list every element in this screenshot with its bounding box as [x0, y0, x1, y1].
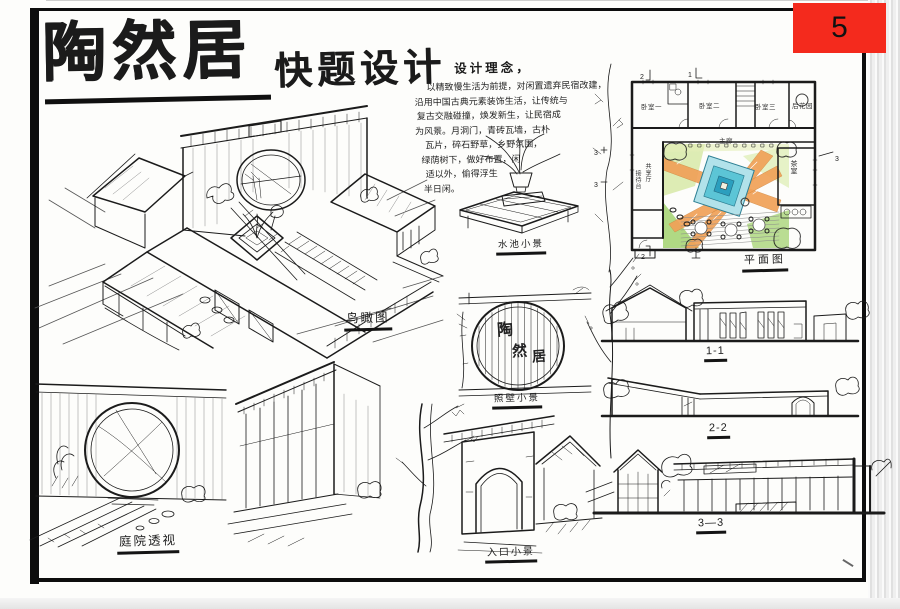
- moon-gate-wall: [36, 384, 226, 505]
- terrace-seating: [681, 212, 779, 246]
- room-label-reception: 接待台: [633, 170, 642, 190]
- section-2-label: 2-2: [707, 422, 730, 440]
- concept-heading: 设计理念，: [454, 56, 610, 77]
- front-left-building: [103, 228, 365, 358]
- plan-label: 平面图: [742, 250, 789, 272]
- room-label-back-garden: 后花园: [792, 100, 813, 110]
- screen-wall-char: 然: [511, 340, 527, 362]
- screen-wall-char: 居: [531, 346, 546, 367]
- side-house: [458, 436, 602, 553]
- section-2: [602, 377, 859, 416]
- courtyard-perspective-drawing: [28, 346, 392, 548]
- section-3-label: 3—3: [696, 517, 727, 535]
- entrance-gate: [444, 416, 554, 534]
- section-1: [602, 285, 869, 341]
- entrance-sketch: [386, 402, 604, 554]
- section-3: [586, 450, 891, 513]
- room-label-bedroom2: 卧室二: [699, 100, 720, 110]
- presentation-board: 5 陶然居 快题设计 设计理念， 以精致慢生活为前提，对闲置遗弃民宿改建， 沿用…: [0, 0, 900, 609]
- water-feature-label: 水池小景: [496, 235, 546, 255]
- concept-line: 半日闲。: [424, 179, 612, 196]
- floor-plan-drawing: 2 1 3 2 3 3: [593, 60, 861, 260]
- section-2-drawing: [598, 358, 862, 424]
- screen-wall-char: 陶: [496, 315, 514, 340]
- room-label-bedroom3: 卧室三: [755, 101, 776, 111]
- section-1-label: 1-1: [704, 345, 727, 363]
- section-3-drawing: [586, 440, 892, 522]
- screen-wall-label: 照壁小景: [492, 389, 542, 409]
- sheet-border-bottom: [33, 578, 866, 582]
- svg-text:2: 2: [640, 74, 644, 81]
- room-label-shared-hall: 共享厅: [643, 163, 652, 183]
- stray-pen-mark: [842, 559, 853, 567]
- svg-text:2: 2: [641, 254, 645, 261]
- scan-edge-bottom: [0, 598, 900, 609]
- room-label-tea-room: 茶室: [788, 160, 798, 175]
- svg-text:3: 3: [835, 156, 839, 163]
- room-label-bedroom1: 卧室一: [641, 101, 662, 111]
- rear-gallery-building: [181, 106, 367, 236]
- section-1-drawing: [598, 278, 862, 350]
- entrance-label: 入口小景: [485, 542, 538, 563]
- page-title: 陶然居: [41, 0, 253, 94]
- courtyard-interior: [200, 202, 377, 323]
- concept-line: 以精致慢生活为前提，对闲置遗弃民宿改建，: [426, 78, 610, 95]
- sheet-number-badge: 5: [793, 3, 886, 53]
- pavilion: [228, 362, 381, 546]
- entrance-tree: [396, 404, 478, 552]
- courtyard-perspective-label: 庭院透视: [117, 529, 180, 555]
- page-subtitle: 快题设计: [273, 36, 446, 95]
- table: [460, 192, 578, 233]
- sheet-number: 5: [831, 11, 848, 45]
- svg-text:1: 1: [688, 72, 692, 79]
- room-label-main-corridor: 主廊: [719, 135, 733, 145]
- axonometric-label: 鸟瞰图: [344, 306, 392, 331]
